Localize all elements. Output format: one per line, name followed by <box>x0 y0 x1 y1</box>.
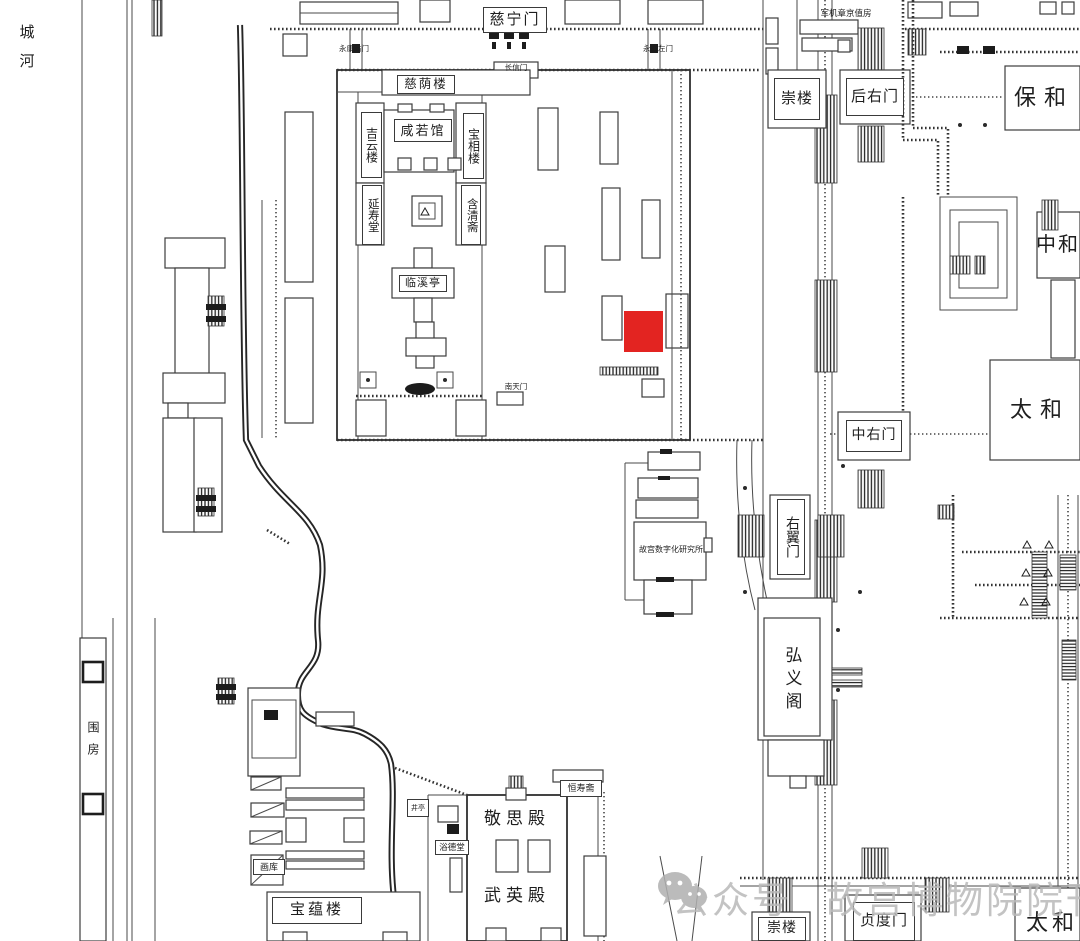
label-zhonghe-hall: 中和 <box>1036 228 1080 262</box>
label-yongkang-left-gate: 永康左门 <box>638 44 678 54</box>
top-right-walls <box>905 2 1080 55</box>
label-baoyun-tower: 宝蕴楼 <box>272 897 362 924</box>
label-hengshou-studio: 恒寿斋 <box>560 780 602 797</box>
label-well-pavilion: 井亭 <box>407 799 429 817</box>
weifang-buildings <box>80 638 106 941</box>
label-chong-tower-north: 崇楼 <box>774 78 820 120</box>
label-digitization-institute: 故宫数字化研究所 <box>638 545 704 555</box>
watermark-account: 故宫博物院院刊 <box>826 870 1080 924</box>
cining-gate-structure <box>489 31 529 49</box>
label-xianruo-hall: 咸若馆 <box>394 119 452 142</box>
label-junji-duty-room: 军机章京值房 <box>812 8 880 18</box>
west-range-buildings <box>163 112 313 704</box>
label-jiyun-tower: 吉云楼 <box>361 112 382 178</box>
map-linework <box>0 0 1080 941</box>
label-zhongyou-gate: 中右门 <box>846 420 902 452</box>
label-painting-storehouse: 画库 <box>253 859 285 875</box>
label-houyou-gate: 后右门 <box>846 78 904 116</box>
label-yanshou-hall: 延寿堂 <box>362 185 382 245</box>
label-moat: 城河 <box>14 20 36 86</box>
label-nantian-gate: 南天门 <box>501 382 531 391</box>
label-jingsi-hall: 敬思殿 <box>480 806 554 830</box>
label-linxi-pavilion: 临溪亭 <box>399 275 447 292</box>
mid-right-gates <box>738 412 910 788</box>
label-yongkang-right-gate: 永康右门 <box>334 44 374 54</box>
label-changxin-gate: 长信门 <box>494 62 538 74</box>
outer-court-walls <box>737 0 837 941</box>
label-cining-gate: 慈宁门 <box>483 7 547 33</box>
east-courtyard-buildings <box>538 70 688 440</box>
label-baoxiang-tower: 宝相楼 <box>463 113 484 179</box>
label-taihe-hall: 太和 <box>1000 392 1080 428</box>
label-weifang: 围房 <box>84 714 102 772</box>
label-hanqing-studio: 含清斋 <box>461 185 481 245</box>
highlight-marker <box>624 311 663 352</box>
label-youyi-gate: 右翼门 <box>777 499 805 575</box>
label-wuying-hall: 武英殿 <box>478 883 556 907</box>
digitization-institute-buildings <box>625 449 712 617</box>
map-canvas: 城河 慈宁门 永康右门 长信门 永康左门 慈荫楼 吉云楼 咸若馆 宝相楼 延寿堂… <box>0 0 1080 941</box>
label-baohe-hall: 保和 <box>1008 78 1080 118</box>
label-yude-hall: 浴德堂 <box>435 840 469 855</box>
label-ciyin-tower: 慈荫楼 <box>397 75 455 94</box>
label-hongyi-pavilion: 弘义阁 <box>766 632 818 728</box>
watermark: 公众号 故宫博物院院刊 <box>656 870 1080 924</box>
